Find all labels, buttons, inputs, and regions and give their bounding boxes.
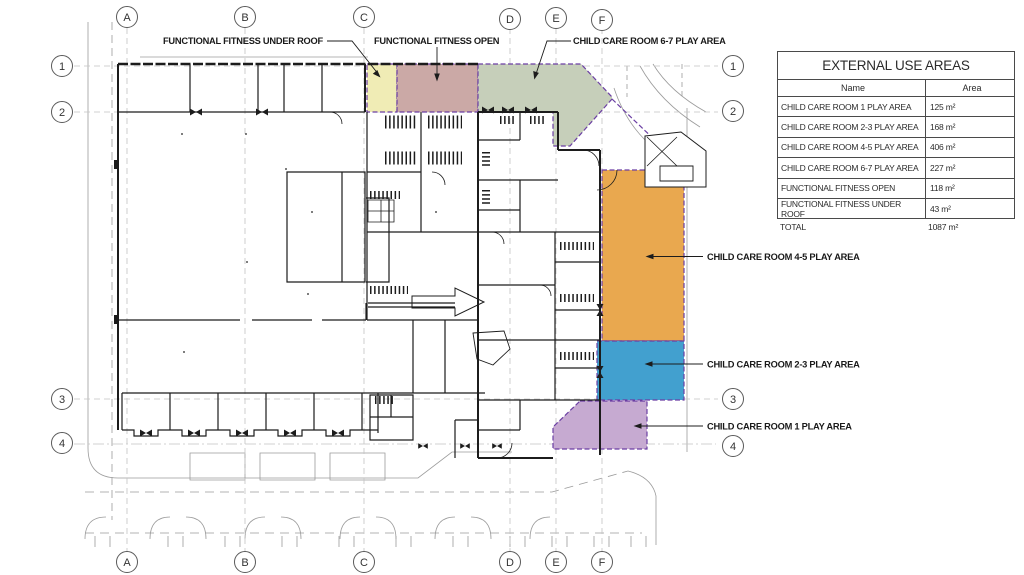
table-row: CHILD CARE ROOM 2-3 PLAY AREA 168 m² bbox=[778, 117, 1014, 137]
external-use-areas-table: EXTERNAL USE AREAS Name Area CHILD CARE … bbox=[777, 51, 1015, 219]
svg-text:B: B bbox=[241, 557, 248, 569]
grid-bubble-d-bottom: D bbox=[500, 552, 521, 573]
svg-text:1: 1 bbox=[59, 61, 65, 73]
table-header-name: Name bbox=[778, 80, 925, 96]
svg-text:F: F bbox=[599, 557, 606, 569]
grid-bubble-a-top: A bbox=[117, 7, 138, 28]
label-child-care-6-7: CHILD CARE ROOM 6-7 PLAY AREA bbox=[573, 36, 726, 46]
table-total-row: TOTAL 1087 m² bbox=[777, 219, 1013, 232]
svg-text:2: 2 bbox=[59, 107, 65, 119]
svg-text:2: 2 bbox=[730, 106, 736, 118]
table-header-area: Area bbox=[925, 80, 1014, 96]
svg-text:F: F bbox=[599, 15, 606, 27]
grid-bubble-1-right: 1 bbox=[723, 56, 744, 77]
total-value: 1087 m² bbox=[924, 222, 1013, 232]
canopy-structure bbox=[645, 132, 706, 187]
table-header-row: Name Area bbox=[778, 80, 1014, 97]
total-label: TOTAL bbox=[777, 222, 924, 232]
table-title: EXTERNAL USE AREAS bbox=[778, 52, 1014, 80]
svg-text:1: 1 bbox=[730, 61, 736, 73]
row-area: 125 m² bbox=[925, 97, 1014, 116]
svg-text:D: D bbox=[506, 14, 514, 26]
grid-bubble-f-top: F bbox=[592, 10, 613, 31]
svg-text:E: E bbox=[552, 13, 559, 25]
wall-pilaster bbox=[114, 315, 119, 324]
row-area: 118 m² bbox=[925, 179, 1014, 198]
row-name: CHILD CARE ROOM 1 PLAY AREA bbox=[778, 97, 925, 116]
zone-functional-fitness-under-roof bbox=[367, 64, 397, 112]
wall-pilaster bbox=[114, 160, 119, 169]
grid-bubble-3-left: 3 bbox=[52, 389, 73, 410]
zone-functional-fitness-open bbox=[397, 64, 478, 112]
grid-bubble-2-right: 2 bbox=[723, 101, 744, 122]
grid-bubble-3-right: 3 bbox=[723, 389, 744, 410]
grid-bubble-b-bottom: B bbox=[235, 552, 256, 573]
row-area: 227 m² bbox=[925, 158, 1014, 177]
grid-bubble-b-top: B bbox=[235, 7, 256, 28]
grid-bubble-d-top: D bbox=[500, 9, 521, 30]
svg-text:A: A bbox=[123, 557, 131, 569]
row-area: 168 m² bbox=[925, 117, 1014, 136]
row-area: 406 m² bbox=[925, 138, 1014, 157]
grid-bubble-e-bottom: E bbox=[546, 552, 567, 573]
zone-child-care-4-5 bbox=[602, 170, 684, 341]
svg-text:C: C bbox=[360, 12, 368, 24]
table-row: FUNCTIONAL FITNESS UNDER ROOF 43 m² bbox=[778, 199, 1014, 218]
table-row: CHILD CARE ROOM 4-5 PLAY AREA 406 m² bbox=[778, 138, 1014, 158]
label-functional-fitness-open: FUNCTIONAL FITNESS OPEN bbox=[374, 36, 500, 46]
zone-child-care-6-7 bbox=[478, 64, 612, 146]
svg-text:B: B bbox=[241, 12, 248, 24]
row-name: CHILD CARE ROOM 2-3 PLAY AREA bbox=[778, 117, 925, 136]
label-child-care-1: CHILD CARE ROOM 1 PLAY AREA bbox=[707, 422, 852, 432]
grid-bubble-2-left: 2 bbox=[52, 102, 73, 123]
svg-text:4: 4 bbox=[59, 438, 65, 450]
floor-plan-sheet: FUNCTIONAL FITNESS UNDER ROOF FUNCTIONAL… bbox=[0, 0, 1024, 575]
grid-bubble-4-right: 4 bbox=[723, 436, 744, 457]
row-name: CHILD CARE ROOM 4-5 PLAY AREA bbox=[778, 138, 925, 157]
grid-bubble-c-top: C bbox=[354, 7, 375, 28]
grid-bubble-f-bottom: F bbox=[592, 552, 613, 573]
site-islands bbox=[190, 453, 385, 480]
svg-text:C: C bbox=[360, 557, 368, 569]
table-row: CHILD CARE ROOM 6-7 PLAY AREA 227 m² bbox=[778, 158, 1014, 178]
parking-ticks bbox=[95, 536, 646, 547]
grid-bubble-4-left: 4 bbox=[52, 433, 73, 454]
table-row: FUNCTIONAL FITNESS OPEN 118 m² bbox=[778, 179, 1014, 199]
zone-child-care-2-3 bbox=[597, 341, 684, 400]
svg-text:D: D bbox=[506, 557, 514, 569]
label-child-care-2-3: CHILD CARE ROOM 2-3 PLAY AREA bbox=[707, 360, 860, 370]
svg-text:3: 3 bbox=[730, 394, 736, 406]
row-name: FUNCTIONAL FITNESS UNDER ROOF bbox=[778, 199, 925, 218]
grid-bubble-e-top: E bbox=[546, 8, 567, 29]
label-child-care-4-5: CHILD CARE ROOM 4-5 PLAY AREA bbox=[707, 252, 860, 262]
row-name: FUNCTIONAL FITNESS OPEN bbox=[778, 179, 925, 198]
grid-bubble-1-left: 1 bbox=[52, 56, 73, 77]
row-area: 43 m² bbox=[925, 199, 1014, 218]
entrance-arrow bbox=[412, 288, 484, 316]
svg-text:4: 4 bbox=[730, 441, 736, 453]
svg-text:E: E bbox=[552, 557, 559, 569]
row-name: CHILD CARE ROOM 6-7 PLAY AREA bbox=[778, 158, 925, 177]
table-row: CHILD CARE ROOM 1 PLAY AREA 125 m² bbox=[778, 97, 1014, 117]
grid-bubble-c-bottom: C bbox=[354, 552, 375, 573]
parking-stall-arcs bbox=[85, 517, 550, 539]
door-symbols bbox=[140, 107, 604, 449]
grid-bubble-a-bottom: A bbox=[117, 552, 138, 573]
svg-text:A: A bbox=[123, 12, 131, 24]
label-functional-fitness-under-roof: FUNCTIONAL FITNESS UNDER ROOF bbox=[163, 36, 323, 46]
svg-text:3: 3 bbox=[59, 394, 65, 406]
